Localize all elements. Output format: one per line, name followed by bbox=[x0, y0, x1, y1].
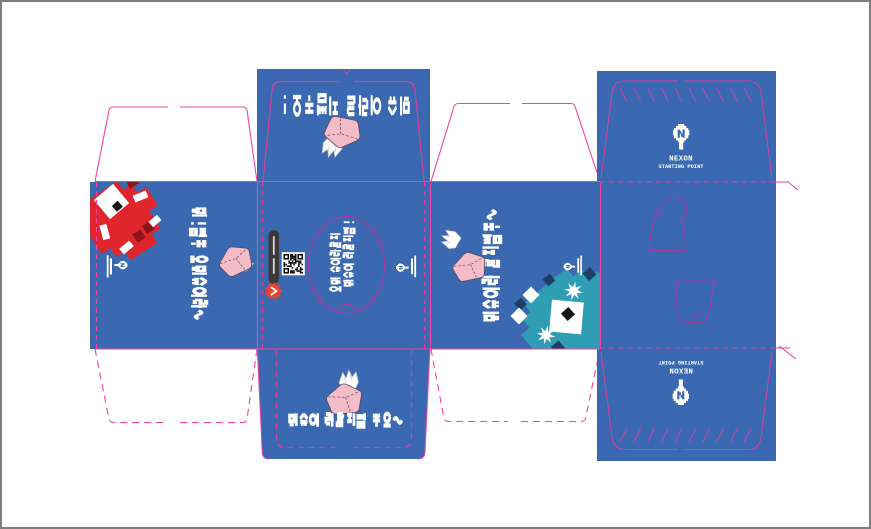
svg-text:NEXON: NEXON bbox=[669, 156, 693, 164]
svg-text:NEXON: NEXON bbox=[669, 366, 693, 374]
svg-text:STARTING POINT: STARTING POINT bbox=[659, 359, 704, 365]
svg-text:STARTING POINT: STARTING POINT bbox=[659, 164, 704, 170]
